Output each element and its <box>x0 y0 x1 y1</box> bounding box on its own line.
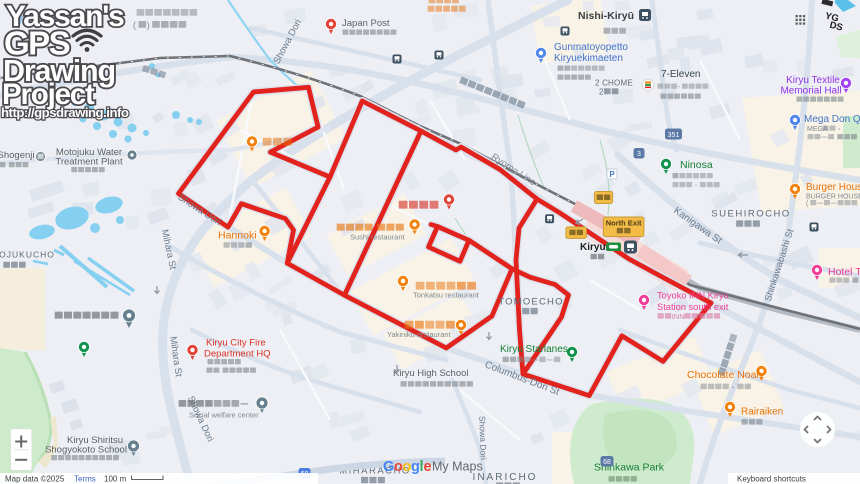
svg-text:3: 3 <box>637 151 641 158</box>
svg-text:Department HQ: Department HQ <box>204 349 271 360</box>
svg-text:2 CHOME: 2 CHOME <box>595 79 633 88</box>
svg-text:My Maps: My Maps <box>432 460 483 474</box>
svg-text:Burger House: Burger House <box>806 182 860 193</box>
svg-text:Sushi restaurant: Sushi restaurant <box>350 233 406 242</box>
svg-text:Memorial Hall: Memorial Hall <box>780 86 841 97</box>
svg-text:100 m: 100 m <box>104 475 127 484</box>
svg-text:INN: INN <box>672 312 685 321</box>
svg-text:Showa Dori: Showa Dori <box>477 416 489 460</box>
svg-text:Kiryu High School: Kiryu High School <box>393 368 469 379</box>
svg-text:Hotel Te: Hotel Te <box>828 266 860 278</box>
svg-text:Social welfare center: Social welfare center <box>189 411 259 420</box>
svg-text:Tonkatsu restaurant: Tonkatsu restaurant <box>413 291 480 300</box>
svg-text:Toyoko INN Kiryu: Toyoko INN Kiryu <box>657 291 729 301</box>
svg-text:Kiryuekimaeten: Kiryuekimaeten <box>554 53 623 64</box>
svg-text:g: g <box>411 459 419 475</box>
svg-text:Kiryu Starlanes: Kiryu Starlanes <box>500 344 568 355</box>
svg-text:351: 351 <box>668 132 680 139</box>
svg-text:P: P <box>609 170 615 179</box>
svg-text:e: e <box>424 459 432 475</box>
svg-text:): ) <box>147 20 150 30</box>
svg-text:Terms: Terms <box>74 475 96 484</box>
svg-text:(: ( <box>133 20 136 30</box>
svg-text:Hannoki: Hannoki <box>218 230 257 242</box>
svg-text:Chocolate Noah: Chocolate Noah <box>687 369 762 381</box>
svg-text:Mega Don Q: Mega Don Q <box>804 114 860 125</box>
svg-text:Japan Post: Japan Post <box>342 18 390 29</box>
svg-text:Yakiniku restaurant: Yakiniku restaurant <box>387 330 452 339</box>
svg-text:l: l <box>420 459 424 475</box>
svg-text:Kiryu: Kiryu <box>580 242 606 253</box>
svg-text:TOMOECHO: TOMOECHO <box>498 297 563 308</box>
svg-text:Kiryu City Fire: Kiryu City Fire <box>206 338 266 349</box>
svg-text:Treatment Plant: Treatment Plant <box>55 157 123 168</box>
svg-text:Shogyokoto School: Shogyokoto School <box>45 445 127 456</box>
svg-text:Shogenji: Shogenji <box>0 150 34 161</box>
svg-text:INARICHO: INARICHO <box>473 472 538 483</box>
svg-text:68: 68 <box>603 459 611 466</box>
svg-text:OJUKUCHO: OJUKUCHO <box>0 250 55 260</box>
svg-text:Station south exit: Station south exit <box>657 302 729 312</box>
svg-text:Ninosa: Ninosa <box>680 159 713 171</box>
svg-text:Rairaiken: Rairaiken <box>741 407 783 418</box>
svg-text:Nishi-Kiryū: Nishi-Kiryū <box>578 10 634 22</box>
svg-text:SUEHIROCHO: SUEHIROCHO <box>711 209 790 220</box>
svg-text:North Exit: North Exit <box>606 218 642 227</box>
svg-text:http://gpsdrawing.info: http://gpsdrawing.info <box>1 105 129 120</box>
svg-text:G: G <box>383 459 394 475</box>
svg-text:Kiryu Textile: Kiryu Textile <box>786 75 840 86</box>
svg-text:2: 2 <box>599 88 604 97</box>
svg-text:Gunmatoyopetto: Gunmatoyopetto <box>554 42 628 53</box>
svg-text:7-Eleven: 7-Eleven <box>661 69 700 80</box>
svg-text:Keyboard shortcuts: Keyboard shortcuts <box>737 475 806 484</box>
svg-text:Map data ©2025: Map data ©2025 <box>5 475 65 484</box>
svg-text:BURGER HOUSE: BURGER HOUSE <box>806 194 860 201</box>
